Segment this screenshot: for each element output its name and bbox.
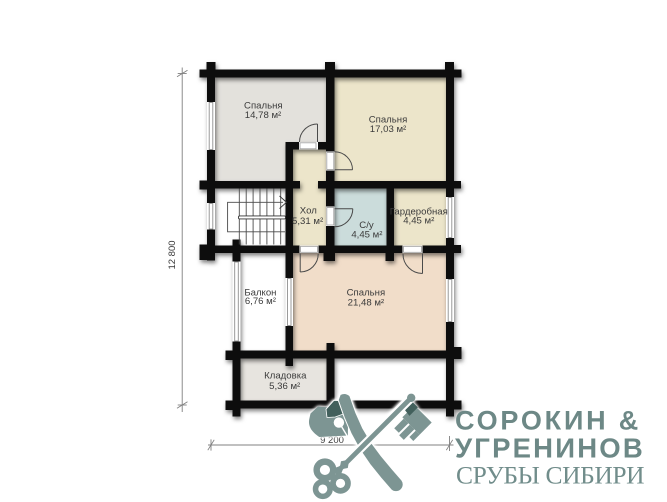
svg-text:4,45 м²: 4,45 м² [351, 229, 383, 240]
svg-text:14,78 м²: 14,78 м² [245, 110, 282, 121]
svg-text:5,36 м²: 5,36 м² [269, 381, 301, 392]
svg-text:4,45 м²: 4,45 м² [403, 215, 435, 226]
svg-text:Кладовка: Кладовка [264, 370, 307, 381]
svg-text:12 800: 12 800 [167, 240, 178, 269]
svg-text:21,48 м²: 21,48 м² [348, 297, 385, 308]
svg-text:6,76 м²: 6,76 м² [245, 296, 277, 307]
svg-text:5,31 м²: 5,31 м² [292, 216, 324, 227]
svg-text:Хол: Хол [300, 206, 317, 217]
svg-text:СРУБЫ СИБИРИ: СРУБЫ СИБИРИ [456, 461, 644, 490]
svg-text:СОРОКИН &: СОРОКИН & [455, 406, 641, 436]
svg-text:УГРЕНИНОВ: УГРЕНИНОВ [455, 433, 645, 464]
svg-text:17,03 м²: 17,03 м² [370, 124, 407, 135]
